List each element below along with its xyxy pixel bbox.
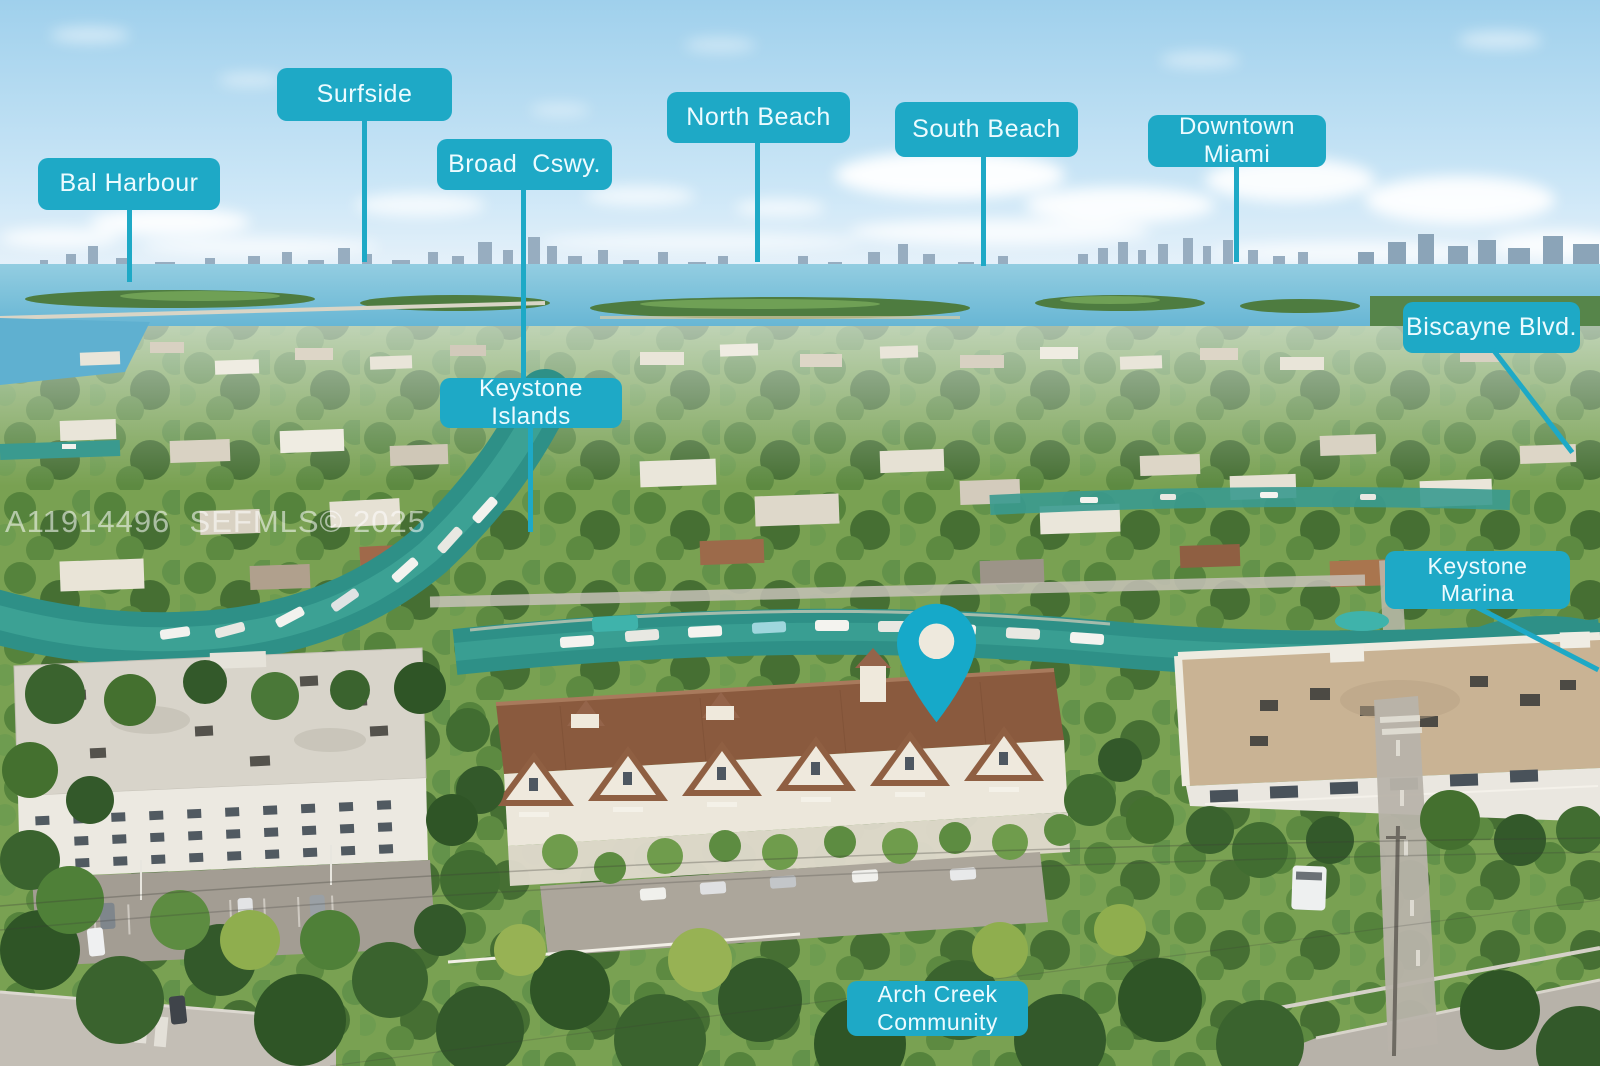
callout-north-beach: North Beach (667, 92, 850, 143)
callout-text: South Beach (912, 115, 1061, 145)
callout-leader-line (1234, 165, 1239, 262)
callout-biscayne-blvd: Biscayne Blvd. (1403, 302, 1580, 353)
callout-surfside: Surfside (277, 68, 452, 121)
callout-leader-line (528, 426, 533, 532)
callout-text: Downtown Miami (1148, 113, 1326, 170)
callout-leader-line (362, 119, 367, 262)
callout-text: Arch Creek Community (877, 981, 998, 1035)
callout-leader-line (521, 188, 526, 378)
callout-text: Biscayne Blvd. (1406, 313, 1577, 343)
callout-leader-line (755, 141, 760, 262)
callout-leader-line (981, 155, 986, 266)
aerial-listing-photo: A11914496 SEFMLS© 2025 Bal Harbour Surfs… (0, 0, 1600, 1066)
map-pin-icon (897, 601, 976, 725)
callout-text: Keystone Marina (1413, 553, 1542, 607)
callout-arch-creek-community: Arch Creek Community (847, 981, 1028, 1036)
callout-text: Surfside (317, 80, 413, 110)
mls-watermark: A11914496 SEFMLS© 2025 (5, 504, 426, 540)
callout-text: Keystone Islands (440, 375, 622, 432)
callout-downtown-miami: Downtown Miami (1148, 115, 1326, 167)
callout-text: Broad Cswy. (448, 150, 601, 180)
callout-broad-cswy: Broad Cswy. (437, 139, 612, 190)
callout-leader-line (127, 208, 132, 282)
callout-south-beach: South Beach (895, 102, 1078, 157)
callout-bal-harbour: Bal Harbour (38, 158, 220, 210)
callout-text: North Beach (686, 103, 830, 133)
callout-keystone-islands: Keystone Islands (440, 378, 622, 428)
callout-text: Bal Harbour (60, 169, 199, 199)
callout-keystone-marina: Keystone Marina (1385, 551, 1570, 609)
